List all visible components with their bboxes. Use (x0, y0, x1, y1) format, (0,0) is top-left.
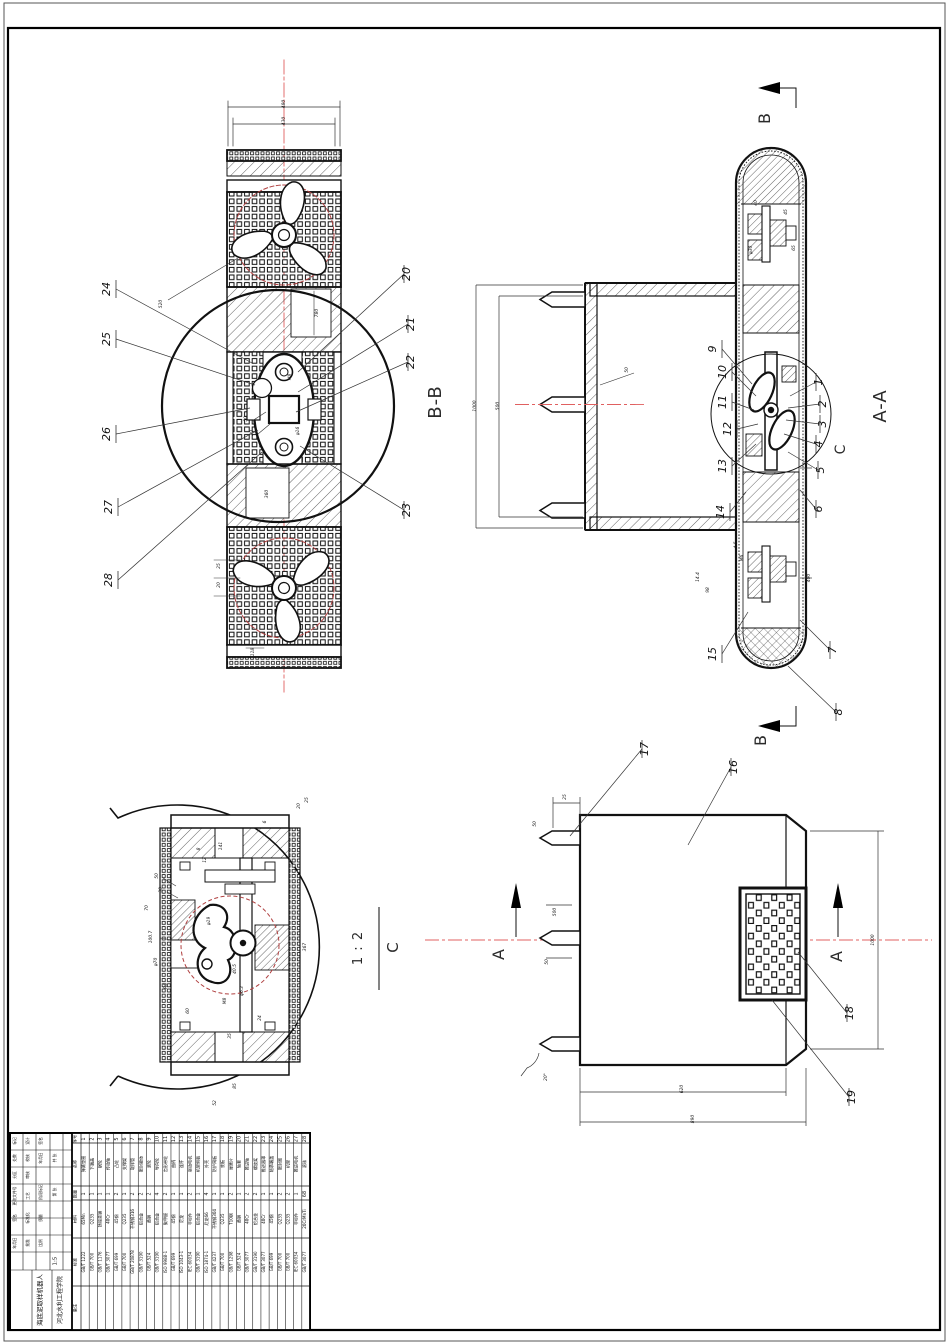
titleblock-label-7: 校核 (25, 1154, 30, 1162)
part-standard-4: GB/T 3077 (106, 1251, 111, 1273)
titleblock-label-4: 签名 (12, 1214, 17, 1222)
dimension-text-detail-14: φ6.3 (239, 986, 245, 996)
part-no-10: 10 (155, 1136, 161, 1142)
titleblock-label-0: 标记 (12, 1137, 17, 1145)
dimension-text-detail-3: 8 (196, 847, 202, 850)
callout-balloon-15: 15 (706, 647, 719, 661)
part-name-4: 传动轴 (105, 1158, 111, 1170)
titleblock-label-3: 更改文件号 (12, 1186, 17, 1205)
dimension-text-main-7: 20° (543, 1073, 549, 1081)
part-no-12: 12 (171, 1136, 177, 1142)
callout-balloon-12: 12 (721, 422, 734, 436)
part-no-20: 20 (236, 1136, 242, 1142)
parts-header-3: 材料 (72, 1214, 79, 1223)
part-standard-9: GB/T 524 (147, 1252, 152, 1271)
part-standard-17: GB/T 4237 (212, 1251, 217, 1273)
dimension-text-bb-2: 520 (158, 300, 164, 309)
part-standard-20: GB/T 524 (236, 1252, 241, 1271)
callout-balloon-8: 8 (832, 709, 845, 716)
callout-balloon-7: 7 (826, 647, 839, 654)
callout-balloon-28: 28 (102, 573, 115, 587)
dimension-text-detail-1: 25 (304, 797, 310, 803)
dimension-text-main-1: 890 (690, 1115, 696, 1124)
part-qty-15: 1 (196, 1192, 202, 1195)
part-no-3: 3 (97, 1137, 103, 1140)
dimension-text-main-0: 620 (679, 1085, 685, 1094)
part-standard-5: GB/T 699 (114, 1252, 119, 1271)
titleblock-label-15: 质量 (38, 1214, 43, 1222)
titleblock-label-16: 比例 (38, 1239, 43, 1247)
part-material-20: 黄铜 (235, 1215, 241, 1223)
dimension-text-aa-2: 400 (806, 574, 812, 583)
part-standard-2: GB/T 700 (89, 1252, 94, 1271)
part-no-8: 8 (138, 1137, 144, 1140)
parts-header-4: 标准 (72, 1258, 79, 1266)
part-qty-21: 2 (245, 1192, 251, 1195)
part-material-21: 40Cr (245, 1214, 250, 1224)
dimension-text-aa-0: 1000 (472, 400, 478, 411)
dimension-text-detail-21: 20 (296, 803, 302, 809)
callout-balloon-16: 16 (727, 760, 740, 774)
dimension-text-aa-3: 50 (624, 367, 630, 373)
part-name-26: 机架 (285, 1160, 291, 1168)
part-no-19: 19 (228, 1136, 234, 1142)
part-name-9: 滚轮 (146, 1160, 152, 1168)
part-qty-2: 1 (89, 1192, 95, 1195)
part-qty-5: 2 (114, 1192, 120, 1195)
dimension-text-detail-9: 100.7 (148, 931, 154, 944)
part-name-8: 密封舱体 (137, 1156, 143, 1172)
dimension-text-detail-2: 6 (262, 820, 268, 823)
part-qty-10: 4 (155, 1192, 161, 1195)
dimension-text-bb-8: φ16 (295, 427, 301, 436)
part-no-1: 1 (81, 1137, 87, 1140)
part-standard-7: GB/T 20878 (130, 1250, 135, 1274)
titleblock-label-12: 签名 (38, 1137, 43, 1145)
detail-letter-ref: C (833, 444, 849, 455)
part-material-15: 铝合金 (195, 1213, 201, 1225)
part-qty-28: 68 (302, 1191, 308, 1197)
part-no-15: 15 (196, 1136, 202, 1142)
callout-balloon-27: 27 (102, 500, 115, 514)
dimension-text-aa-5: 45 (783, 209, 789, 215)
part-name-10: 导向轮 (154, 1158, 160, 1170)
part-no-27: 27 (294, 1136, 300, 1142)
part-name-7: 取样管 (129, 1158, 135, 1170)
part-no-6: 6 (122, 1137, 128, 1140)
titleblock-label-10: 标准化 (25, 1212, 30, 1224)
part-qty-12: 1 (171, 1192, 177, 1195)
titleblock-label-11: 批准 (25, 1239, 30, 1247)
part-standard-19: GB/T 1298 (228, 1251, 233, 1273)
callout-balloon-21: 21 (404, 317, 417, 331)
titleblock-label-14: 阶段标记 (38, 1184, 43, 1199)
part-material-27: 非标件 (293, 1213, 299, 1225)
cad-canvas: B-B B (0, 0, 950, 1344)
part-material-19: T10钢 (227, 1213, 233, 1226)
part-name-15: 机架侧板 (195, 1156, 201, 1172)
part-material-6: Q235 (122, 1213, 127, 1224)
titleblock-label-5: 年月日 (12, 1237, 17, 1249)
arrow-letter-b-bottom: B (751, 734, 770, 746)
parts-header-2: 数量 (72, 1190, 79, 1198)
part-standard-14: IEC 60034 (187, 1251, 192, 1272)
titleblock-label-6: 设计 (25, 1137, 30, 1145)
dimension-text-aa-7: φ30 (748, 246, 754, 255)
part-qty-14: 2 (187, 1192, 193, 1195)
part-qty-25: 2 (277, 1192, 283, 1195)
dimension-text-detail-8: φ19 (206, 917, 212, 926)
part-name-25: 密封圈 (276, 1158, 282, 1170)
part-no-4: 4 (106, 1137, 112, 1140)
part-qty-9: 2 (147, 1192, 153, 1195)
part-qty-6: 1 (122, 1192, 128, 1195)
part-name-6: 支撑架 (121, 1158, 127, 1170)
part-standard-22: GB/T 3190 (253, 1251, 258, 1273)
part-material-10: 铝合金 (154, 1213, 160, 1225)
part-standard-6: GB/T 700 (122, 1252, 127, 1271)
section-label-aa: A-A (870, 389, 891, 422)
dimension-text-detail-11: R5 (163, 983, 169, 989)
callout-balloon-17: 17 (638, 742, 651, 756)
part-qty-11: 2 (163, 1192, 169, 1195)
callout-balloon-6: 6 (812, 506, 825, 513)
part-name-21: 推进轴 (244, 1158, 250, 1170)
part-material-13: 尼龙 (178, 1215, 184, 1223)
part-material-14: 非标件 (186, 1213, 192, 1225)
part-name-27: 推进电机 (293, 1156, 299, 1172)
part-no-17: 17 (212, 1136, 218, 1142)
section-label-bb: B-B (425, 385, 446, 419)
part-name-23: 推进器罩 (260, 1156, 266, 1172)
part-material-7: 不锈钢316 (129, 1209, 135, 1229)
dimension-text-aa-9: 4.5 (733, 541, 739, 548)
dimension-text-detail-10: φ70 (153, 958, 159, 967)
part-material-11: 聚甲醛 (162, 1213, 168, 1225)
part-standard-3: GB/T 1176 (97, 1251, 102, 1273)
dimension-text-bb-4: 360 (264, 490, 270, 499)
dimension-text-bb-10: 20 (216, 582, 222, 588)
part-standard-25: GB/T 700 (277, 1252, 282, 1271)
part-standard-8: GB/T 3190 (138, 1251, 143, 1273)
part-no-26: 26 (286, 1136, 292, 1142)
dimension-text-detail-16: 60 (185, 1008, 191, 1014)
dimension-text-detail-0: 141 (218, 842, 224, 851)
callout-balloon-11: 11 (716, 395, 729, 409)
part-standard-15: GB/T 3190 (196, 1251, 201, 1273)
part-standard-21: GB/T 3077 (245, 1251, 250, 1273)
callout-balloon-24: 24 (100, 282, 113, 296)
part-material-25: Q235 (277, 1213, 282, 1224)
dimension-text-detail-4: 12 (202, 857, 208, 863)
part-standard-18: GB/T 700 (220, 1252, 225, 1271)
part-name-18: 底板 (219, 1160, 225, 1168)
callout-balloon-4: 4 (812, 441, 825, 448)
part-no-21: 21 (245, 1136, 251, 1142)
part-no-28: 28 (302, 1136, 308, 1142)
part-no-22: 22 (253, 1136, 259, 1142)
titleblock-label-1: 处数 (12, 1154, 17, 1162)
part-name-24: 轴承端盖 (268, 1156, 274, 1172)
dimension-text-detail-17: 24 (257, 1015, 263, 1021)
callout-balloon-1: 1 (812, 379, 825, 386)
part-no-5: 5 (114, 1137, 120, 1140)
dimension-text-detail-19: 85 (232, 1083, 238, 1089)
part-material-22: 铝合金 (252, 1213, 258, 1225)
part-name-3: 蜗轮 (96, 1160, 102, 1168)
titleblock-label-13: 年月日 (38, 1152, 43, 1164)
part-no-25: 25 (277, 1136, 283, 1142)
dimension-text-detail-15: M8 (222, 998, 228, 1005)
part-standard-28: GB/T 3077 (302, 1251, 307, 1273)
dimension-text-main-3: 500 (552, 908, 558, 917)
part-material-4: 40Cr (106, 1214, 111, 1224)
part-material-28: 20CrMnTi (302, 1209, 307, 1228)
part-material-2: Q235 (89, 1213, 94, 1224)
dimension-text-main-6: 50 (532, 821, 538, 827)
part-no-9: 9 (147, 1137, 153, 1140)
part-name-2: 下端盖 (88, 1158, 94, 1170)
part-qty-18: 1 (220, 1192, 226, 1195)
part-standard-1: GB/T 1222 (81, 1251, 86, 1273)
part-material-9: 黄铜 (146, 1215, 152, 1223)
detail-letter: C (384, 941, 402, 952)
parts-header-1: 名称 (72, 1160, 79, 1168)
part-name-13: 连杆 (178, 1160, 184, 1168)
part-standard-11: ISO 9988-1 (163, 1250, 168, 1273)
callout-balloon-26: 26 (100, 427, 113, 441)
arrow-letter-a-left: A (489, 948, 508, 960)
part-qty-26: 2 (286, 1192, 292, 1195)
part-no-11: 11 (163, 1136, 169, 1142)
part-no-7: 7 (130, 1137, 136, 1140)
dimension-text-detail-6: 30 (158, 887, 164, 893)
dimension-text-bb-5: 50 (243, 416, 249, 422)
callout-balloon-3: 3 (816, 421, 829, 428)
callout-balloon-23: 23 (400, 503, 413, 517)
callout-balloon-13: 13 (716, 459, 729, 473)
part-name-22: 螺旋桨 (252, 1158, 258, 1170)
callout-balloon-5: 5 (814, 467, 827, 474)
callout-balloon-9: 9 (706, 346, 719, 353)
part-name-1: 弹簧垫圈 (80, 1156, 86, 1172)
dimension-text-bb-9: 25 (216, 563, 222, 569)
dimension-text-bb-6: 30 (249, 430, 255, 436)
part-qty-8: 2 (138, 1192, 144, 1195)
titleblock-label-17: 共 张 (52, 1153, 57, 1162)
organization-name: 河北水利工程学院 (56, 1276, 64, 1324)
part-qty-24: 1 (269, 1192, 275, 1195)
part-qty-20: 1 (236, 1192, 242, 1195)
part-no-18: 18 (220, 1136, 226, 1142)
part-name-20: 轴套 (235, 1160, 241, 1168)
dimension-text-aa-11: 98 (705, 587, 711, 593)
dimension-text-aa-6: 65 (791, 245, 797, 251)
callout-balloon-10: 10 (716, 365, 729, 379)
part-name-17: 防护网板 (211, 1156, 217, 1172)
dimension-text-detail-7: 70 (144, 905, 150, 911)
part-name-11: 齿形带轮 (162, 1156, 168, 1172)
dimension-text-main-2: 1000 (870, 934, 876, 945)
part-material-8: 铝合金 (137, 1213, 143, 1225)
part-qty-4: 1 (106, 1192, 112, 1195)
part-material-18: Q235 (220, 1213, 225, 1224)
part-qty-19: 2 (228, 1192, 234, 1195)
dimension-text-bb-7: M8 (287, 374, 293, 381)
parts-header-remark: 备注 (72, 1303, 79, 1312)
drawing-title: 海底泥取样机器人 (35, 1274, 44, 1327)
callout-balloon-14: 14 (714, 505, 727, 519)
callout-balloon-18: 18 (843, 1006, 856, 1020)
part-material-16: 尼龙66 (203, 1212, 209, 1226)
part-qty-13: 1 (179, 1192, 185, 1195)
part-no-13: 13 (179, 1136, 185, 1142)
part-standard-13: ISO 1043-1 (179, 1250, 184, 1273)
part-qty-3: 1 (97, 1192, 103, 1195)
drawing-sheet: B-B B (0, 0, 950, 1344)
callout-balloon-22: 22 (404, 355, 417, 369)
dimension-text-bb-0: 480 (281, 100, 287, 109)
part-material-24: 45钢 (268, 1214, 274, 1223)
arrow-letter-a-right: A (827, 950, 846, 962)
arrow-letter-b-top: B (755, 112, 774, 124)
part-name-28: 滚珠 (301, 1160, 307, 1168)
callout-balloon-20: 20 (400, 267, 413, 281)
titleblock-label-9: 工艺 (25, 1192, 30, 1200)
dimension-text-aa-4: 40 (753, 200, 759, 206)
callout-balloon-25: 25 (100, 332, 113, 346)
titleblock-label-2: 分区 (12, 1171, 17, 1179)
parts-header-0: 序号 (72, 1135, 79, 1143)
part-name-14: 驱动电机 (186, 1156, 192, 1172)
part-standard-24: GB/T 699 (269, 1252, 274, 1271)
part-standard-26: GB/T 700 (286, 1252, 291, 1271)
part-material-12: 45钢 (170, 1214, 176, 1223)
part-material-3: 铸锡青铜 (96, 1211, 102, 1227)
part-name-12: 曲柄 (170, 1160, 176, 1168)
part-qty-7: 2 (130, 1192, 136, 1195)
part-no-24: 24 (269, 1136, 275, 1142)
part-material-26: Q235 (286, 1213, 291, 1224)
part-no-14: 14 (187, 1136, 193, 1142)
part-qty-23: 1 (261, 1192, 267, 1195)
detail-scale-label: 1 : 2 (351, 931, 366, 965)
titleblock-label-8: 审核 (25, 1171, 30, 1179)
dimension-text-bb-3: 780 (314, 309, 320, 318)
part-qty-22: 2 (253, 1192, 259, 1195)
part-qty-17: 1 (212, 1192, 218, 1195)
part-qty-16: 4 (204, 1192, 210, 1195)
callout-balloon-2: 2 (816, 401, 829, 408)
part-no-2: 2 (89, 1137, 95, 1140)
part-material-23: 40Cr (261, 1214, 266, 1224)
dimension-text-aa-10: 14.4 (695, 572, 701, 582)
part-no-23: 23 (261, 1136, 267, 1142)
part-name-16: 外壳 (203, 1160, 209, 1168)
part-name-5: 凸轮 (113, 1160, 119, 1168)
dimension-text-detail-20: 52 (212, 1100, 218, 1106)
part-standard-23: GB/T 3077 (261, 1251, 266, 1273)
titleblock-label-18: 第 张 (52, 1187, 57, 1196)
part-qty-1: 1 (81, 1192, 87, 1195)
dimension-text-bb-1: 430 (281, 117, 287, 126)
part-material-5: 45钢 (113, 1214, 119, 1223)
part-material-1: 65Mn (81, 1213, 86, 1225)
part-standard-27: IEC 60034 (294, 1251, 299, 1272)
dimension-text-detail-12: 367 (302, 943, 308, 952)
dimension-text-aa-8: M6 (739, 555, 745, 562)
dimension-text-bb-11: 118 (250, 648, 256, 657)
dimension-text-aa-1: 500 (495, 402, 501, 411)
part-standard-12: GB/T 699 (171, 1252, 176, 1271)
part-standard-16: ISO 1874-1 (204, 1250, 209, 1273)
dimension-text-detail-18: 35 (227, 1033, 233, 1039)
dimension-text-main-5: 25 (562, 794, 568, 800)
dimension-text-detail-13: 40.5 (232, 964, 238, 974)
scale-value: 1:5 (53, 1256, 59, 1265)
callout-balloon-19: 19 (845, 1090, 858, 1104)
part-no-16: 16 (204, 1136, 210, 1142)
part-name-19: 弹簧片 (227, 1158, 233, 1170)
dimension-text-main-4: 50 (544, 959, 550, 965)
part-standard-10: GB/T 3190 (155, 1251, 160, 1273)
part-material-17: 不锈钢304 (211, 1209, 217, 1229)
dimension-text-detail-5: 50 (154, 873, 160, 879)
part-qty-27: 1 (294, 1192, 300, 1195)
